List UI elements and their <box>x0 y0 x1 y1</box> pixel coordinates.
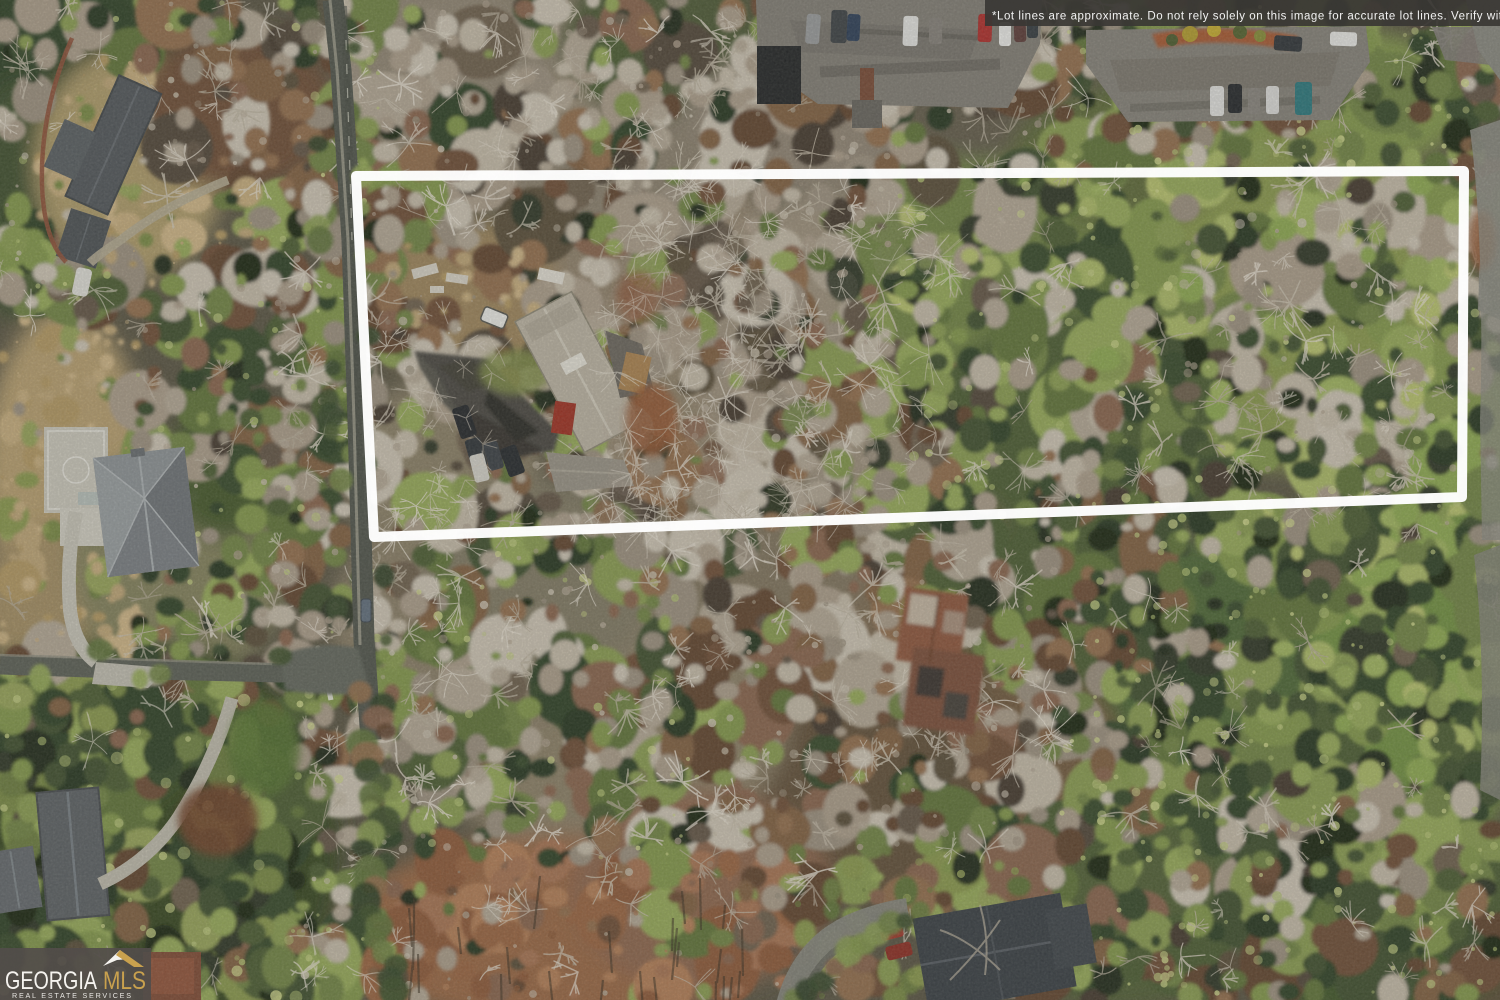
svg-text:REAL ESTATE SERVICES: REAL ESTATE SERVICES <box>12 991 131 1000</box>
svg-text:*Lot lines are approximate. Do: *Lot lines are approximate. Do not rely … <box>992 11 1500 23</box>
